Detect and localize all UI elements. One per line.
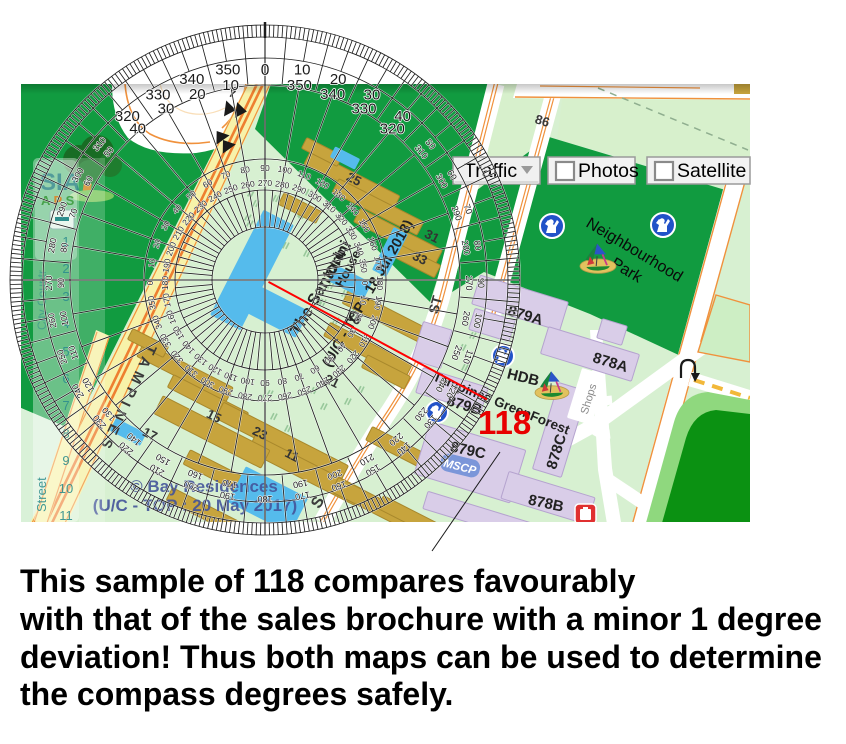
svg-text:10: 10 (146, 257, 158, 268)
svg-text:Photos: Photos (578, 160, 639, 182)
svg-text:Street: Street (34, 477, 49, 512)
svg-text:deviation! Thus both maps can: deviation! Thus both maps can be used to… (20, 639, 822, 675)
svg-text:350: 350 (215, 61, 240, 78)
svg-text:10: 10 (358, 295, 370, 306)
svg-text:340: 340 (320, 86, 345, 103)
svg-text:118: 118 (478, 404, 531, 441)
svg-text:270: 270 (258, 178, 272, 188)
svg-text:350: 350 (287, 77, 312, 94)
svg-text:7: 7 (62, 398, 69, 413)
svg-text:the compass degrees safely.: the compass degrees safely. (20, 676, 453, 712)
svg-text:0: 0 (261, 62, 270, 79)
svg-text:40: 40 (129, 120, 146, 137)
svg-text:20: 20 (189, 86, 206, 103)
svg-text:30: 30 (158, 101, 175, 118)
svg-text:320: 320 (380, 120, 405, 137)
svg-text:90: 90 (56, 278, 66, 288)
svg-text:80: 80 (472, 240, 484, 252)
svg-text:11: 11 (59, 508, 73, 523)
svg-text:with that of the sales brochur: with that of the sales brochure with a m… (19, 601, 822, 637)
svg-text:90: 90 (260, 163, 270, 173)
svg-text:270: 270 (464, 275, 474, 290)
svg-text:This sample of 118 compares fa: This sample of 118 compares favourably (20, 563, 636, 599)
svg-text:80: 80 (240, 164, 251, 176)
svg-text:9: 9 (62, 453, 69, 468)
svg-text:180: 180 (257, 494, 272, 504)
svg-text:80: 80 (277, 376, 288, 388)
svg-text:180: 180 (375, 276, 385, 290)
svg-text:10: 10 (222, 77, 239, 94)
svg-text:0: 0 (145, 280, 155, 285)
svg-text:330: 330 (351, 101, 376, 118)
svg-text:Satellite: Satellite (677, 160, 746, 182)
svg-text:10: 10 (59, 481, 73, 496)
svg-text:90: 90 (476, 278, 486, 288)
svg-text:180: 180 (160, 276, 170, 290)
svg-text:0: 0 (360, 281, 370, 286)
svg-text:270: 270 (258, 393, 272, 403)
svg-text:80: 80 (58, 242, 70, 254)
svg-text:90: 90 (260, 378, 270, 388)
svg-text:270: 270 (44, 275, 54, 290)
svg-text:10: 10 (294, 61, 311, 78)
